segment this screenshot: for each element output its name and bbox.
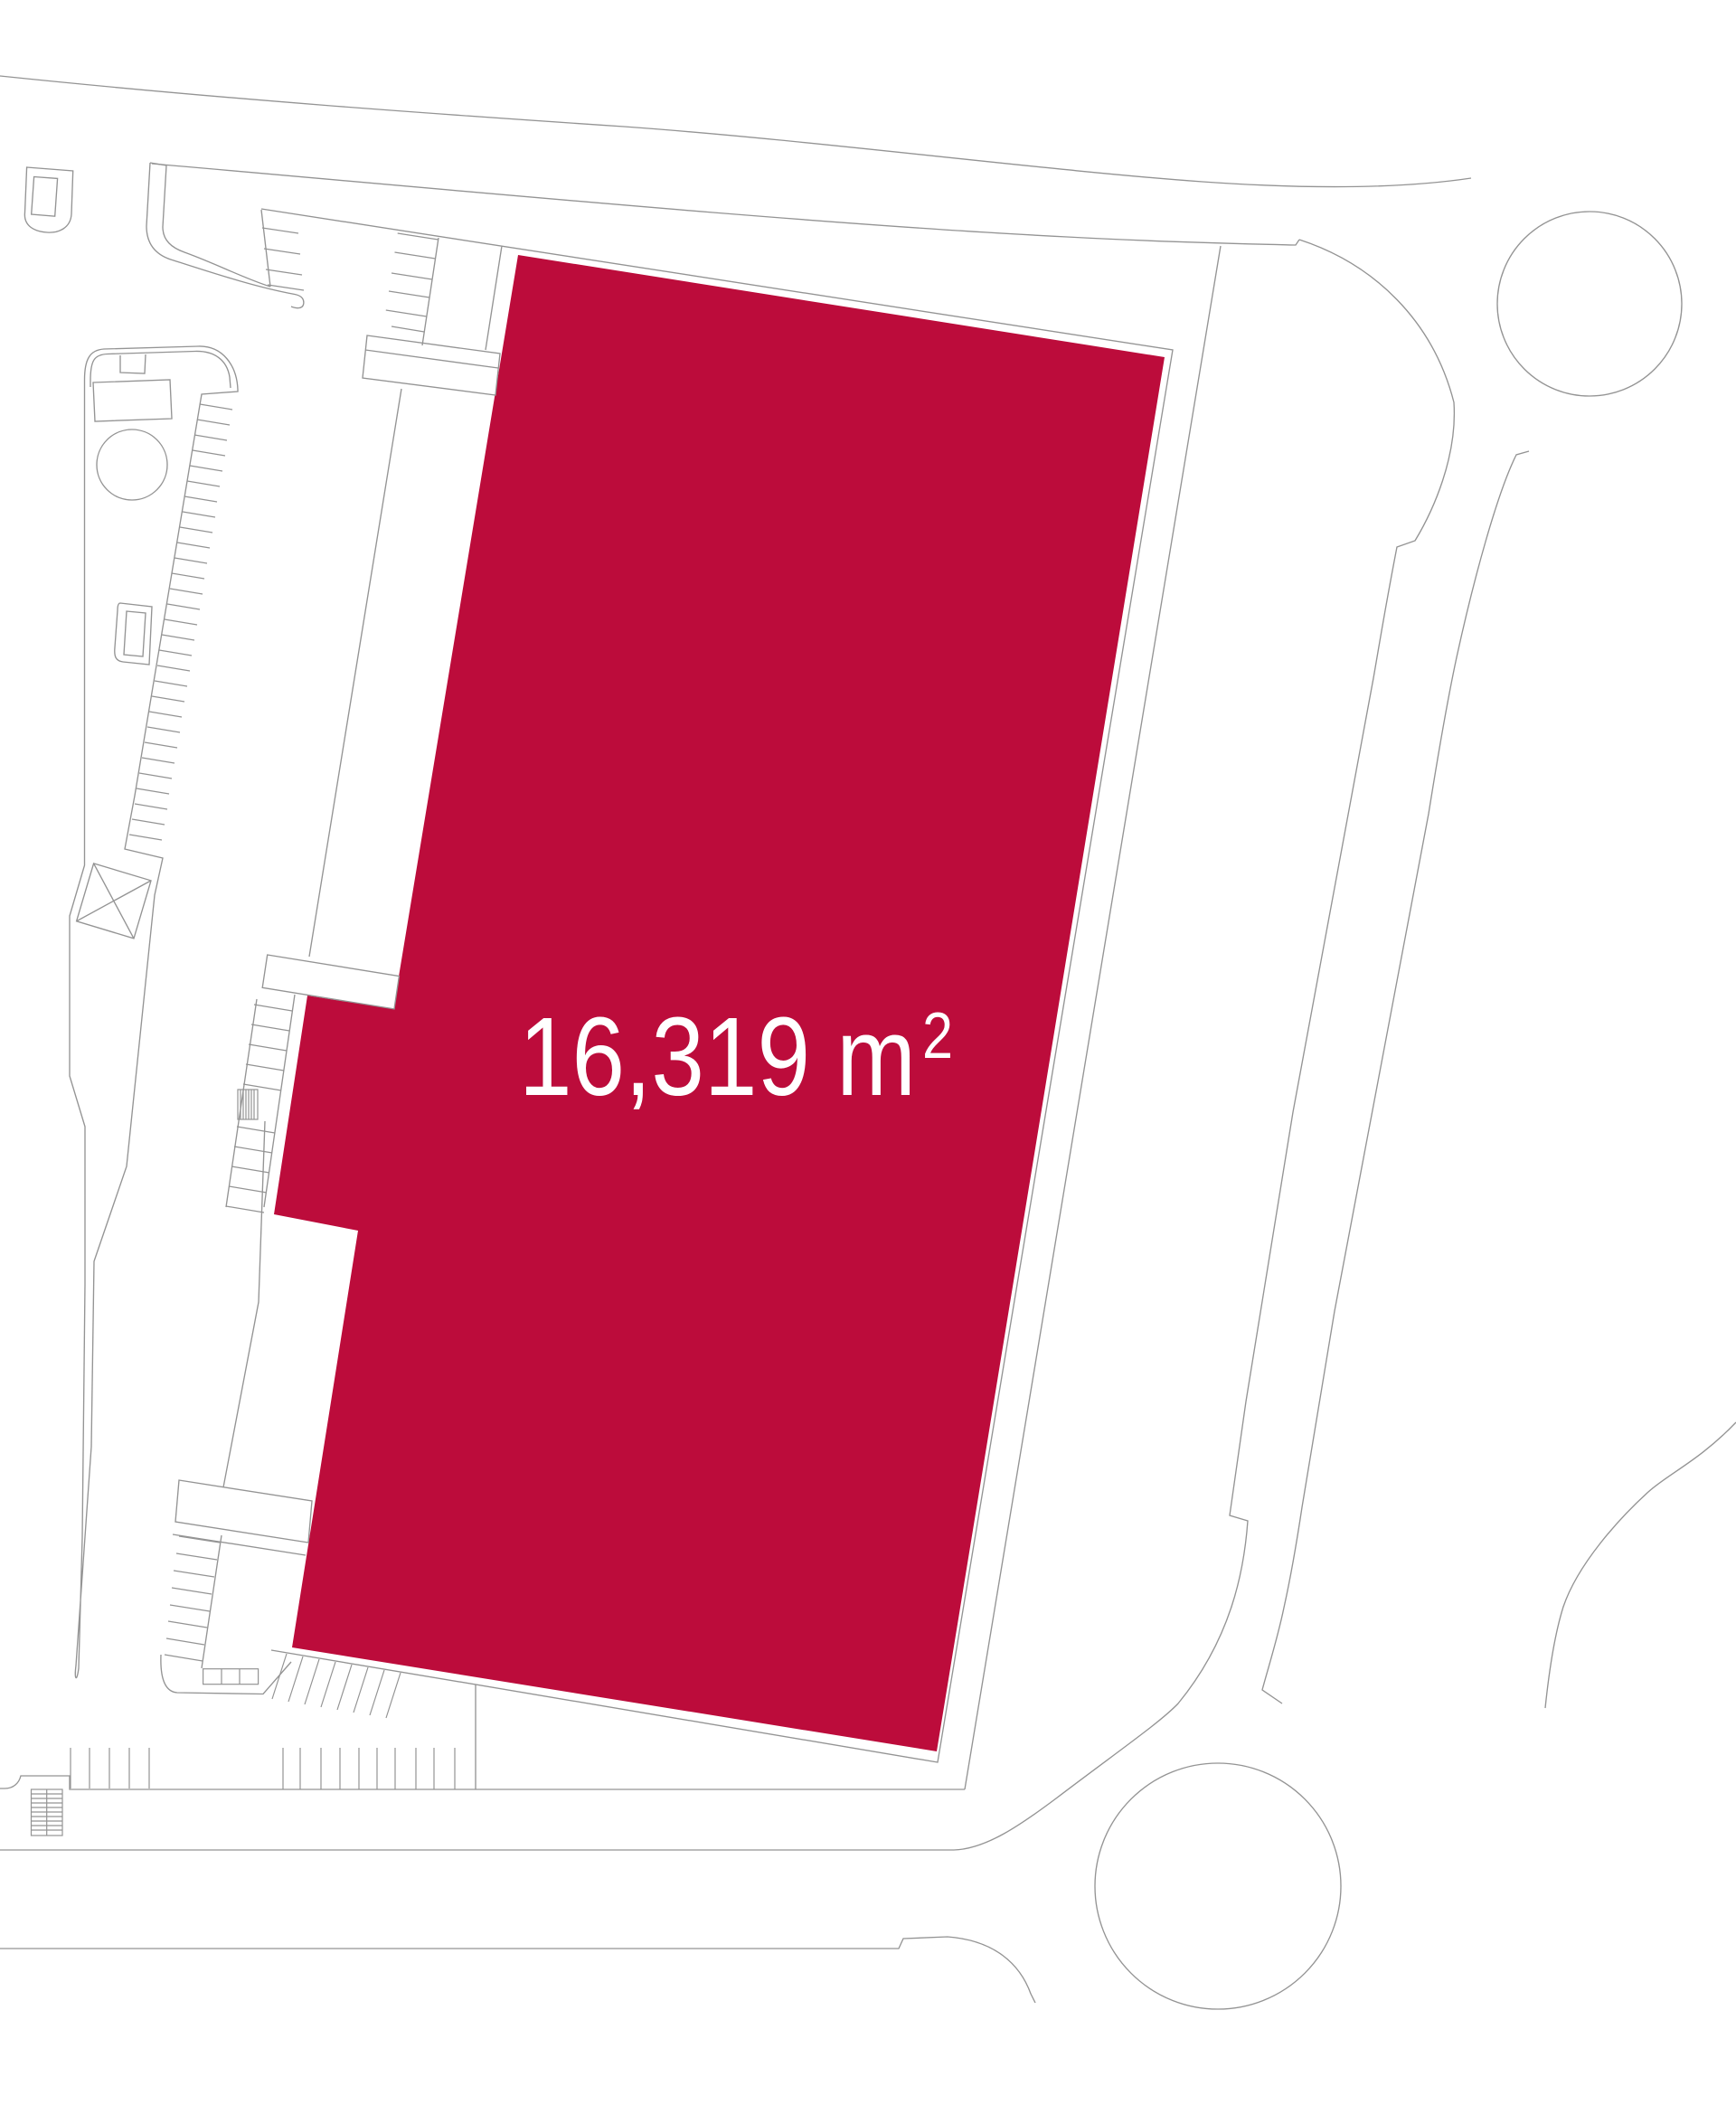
svg-text:16,319 m: 16,319 m xyxy=(519,995,916,1119)
svg-text:2: 2 xyxy=(922,1000,953,1072)
